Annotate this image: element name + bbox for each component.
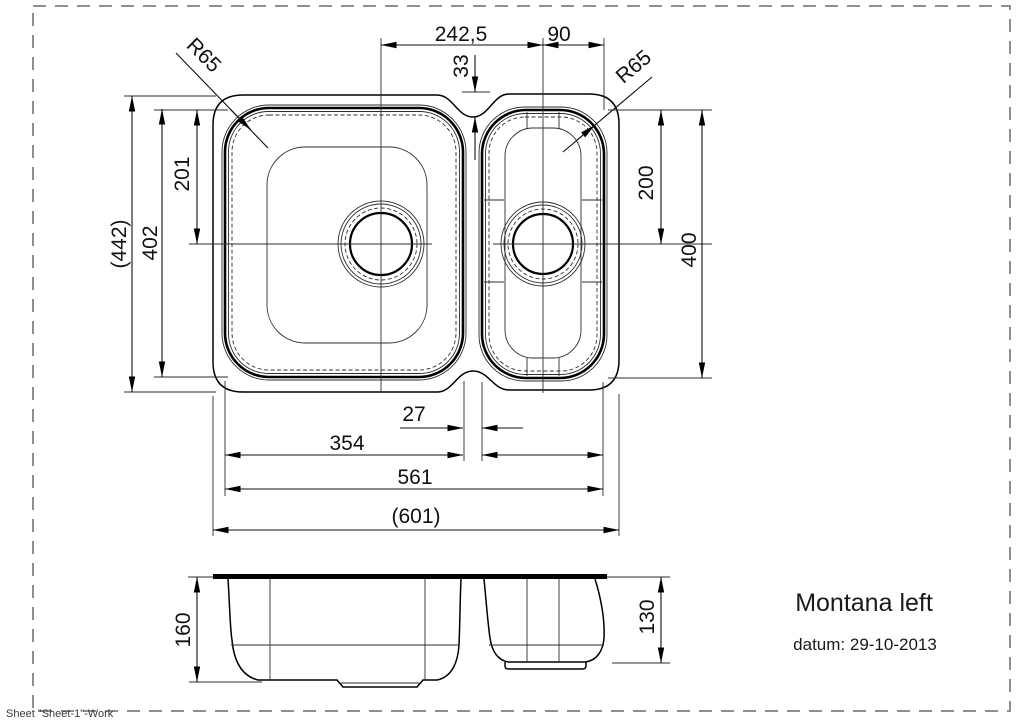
- right-drain-bump: [505, 662, 586, 669]
- drawing-date: datum: 29-10-2013: [793, 635, 937, 654]
- drawing-sheet: R65 R65 242,5 90 33 (442) 402: [0, 0, 1024, 722]
- right-depth-dimension: 130: [612, 577, 670, 663]
- right-radius-label: R65: [612, 46, 656, 88]
- left-radius-leader: R65: [176, 34, 268, 148]
- dim-right-depth: 130: [636, 599, 659, 634]
- flange-bar: [213, 574, 607, 579]
- dim-left-drain-offset: 201: [171, 156, 194, 191]
- bottom-dimensions: 27 354 561 (601): [213, 381, 619, 536]
- dim-left-bowl-width: 354: [329, 432, 364, 455]
- dim-right-drain-offset: 200: [635, 165, 658, 200]
- dim-bowls-width: 561: [397, 466, 432, 489]
- dim-overall-depth: (442): [108, 219, 131, 268]
- left-bowl-plan: [222, 105, 466, 380]
- left-bowl-floor: [267, 147, 427, 343]
- dim-bowl-gap: 27: [402, 403, 425, 426]
- sink-outer-outline: [213, 94, 619, 392]
- left-bowl-profile: [228, 579, 461, 687]
- top-dimensions: 242,5 90 33: [381, 23, 604, 160]
- right-bowl-profile: [484, 579, 604, 662]
- left-radius-label: R65: [182, 34, 226, 78]
- front-view: 160 130: [172, 574, 670, 687]
- dim-waist-offset: 33: [450, 54, 473, 77]
- title-block: Montana left datum: 29-10-2013: [793, 589, 937, 654]
- product-title: Montana left: [795, 589, 933, 617]
- dim-overall-width: (601): [391, 505, 440, 528]
- left-depth-dimension: 160: [172, 577, 262, 682]
- dim-left-bowl-depth: 402: [139, 225, 162, 260]
- dim-right-bowl-depth: 400: [678, 232, 701, 267]
- dim-left-depth: 160: [172, 612, 195, 647]
- dim-right-drain-to-edge: 90: [547, 23, 570, 46]
- dim-drain-spacing: 242,5: [435, 23, 488, 46]
- sheet-label: Sheet "Sheet-1"-Work: [6, 708, 114, 720]
- plan-view: R65 R65 242,5 90 33 (442) 402: [108, 23, 712, 536]
